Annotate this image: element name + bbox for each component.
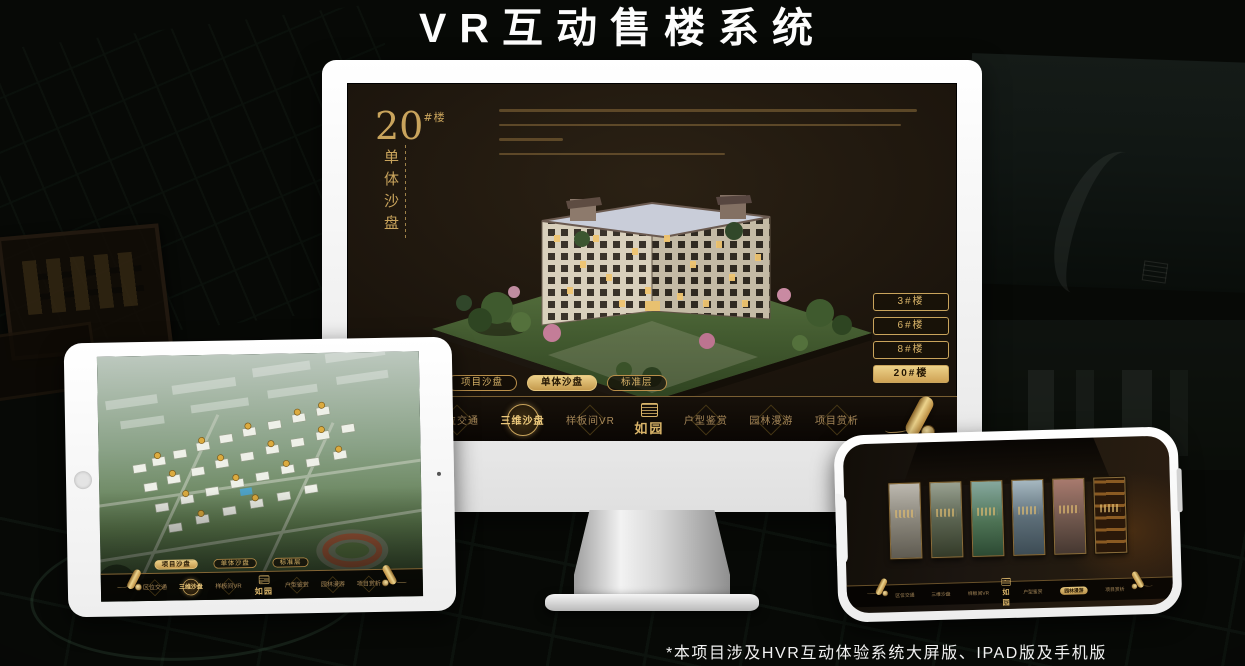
gallery-panel[interactable]	[929, 481, 963, 558]
block-subtitle: 单体沙盘	[381, 149, 402, 257]
brand-logo: 如园	[254, 575, 273, 596]
building-model-render[interactable]	[402, 143, 902, 403]
nav-item-garden-tour[interactable]: 园林漫游	[747, 408, 795, 431]
phone-device: 区位交通 三维沙盘 样板间VR 如园 户型鉴赏 园林漫游 项目赏析	[833, 426, 1182, 623]
gallery-panel[interactable]	[1052, 478, 1086, 555]
nav-item-unit-plans[interactable]: 户型鉴赏	[1022, 588, 1044, 596]
tablet-device: 项目沙盘 单体沙盘 标准层 区位交通 三维沙盘 样板间VR 如园 户型鉴赏 园林…	[64, 337, 457, 618]
footnote-text: *本项目涉及HVR互动体验系统大屏版、IPAD版及手机版	[666, 639, 1107, 663]
gallery-panel[interactable]	[888, 482, 922, 559]
seal-icon	[258, 575, 269, 584]
gallery-panel-row	[888, 476, 1127, 559]
block-number-suffix: #楼	[423, 111, 445, 124]
seal-icon	[641, 403, 658, 417]
nav-item-garden-tour[interactable]: 园林漫游	[319, 577, 346, 592]
notch	[835, 493, 848, 565]
floor-button-20-active[interactable]: 20#楼	[873, 365, 949, 383]
monitor-stand-base	[545, 594, 759, 611]
nav-item-showroom-vr[interactable]: 样板间VR	[214, 579, 244, 594]
brand-logo: 如园	[1001, 578, 1011, 607]
scroll-icon[interactable]	[1129, 570, 1153, 590]
scroll-icon[interactable]	[867, 578, 891, 598]
nav-item-location[interactable]: 区位交通	[894, 591, 916, 599]
tab-standard-floor[interactable]: 标准层	[272, 557, 308, 567]
side-button[interactable]	[1176, 468, 1182, 512]
tab-project-sandtable[interactable]: 项目沙盘	[154, 559, 197, 569]
block-number: 20#楼	[375, 99, 446, 145]
phone-screen: 区位交通 三维沙盘 样板间VR 如园 户型鉴赏 园林漫游 项目赏析	[843, 435, 1174, 613]
seal-icon	[1001, 578, 1011, 586]
nav-item-3d-sandtable[interactable]: 三维沙盘	[930, 590, 952, 598]
nav-item-unit-plans[interactable]: 户型鉴赏	[682, 408, 730, 431]
camera-icon	[437, 472, 441, 476]
scroll-icon[interactable]	[117, 569, 145, 592]
page-title: VR互动售楼系统	[0, 0, 1245, 56]
tablet-screen: 项目沙盘 单体沙盘 标准层 区位交通 三维沙盘 样板间VR 如园 户型鉴赏 园林…	[97, 351, 423, 602]
gallery-panel[interactable]	[1093, 476, 1127, 553]
nav-item-project-gallery[interactable]: 项目赏析	[813, 408, 861, 431]
nav-item-3d-sandtable[interactable]: 三维沙盘	[177, 579, 204, 594]
phone-navbar: 区位交通 三维沙盘 样板间VR 如园 户型鉴赏 园林漫游 项目赏析	[847, 576, 1173, 607]
poster-canvas: VR互动售楼系统 20#楼 单体沙盘	[0, 0, 1245, 666]
mode-tab-group: 项目沙盘 单体沙盘 标准层	[447, 375, 667, 391]
floor-button-group: 3#楼 6#楼 8#楼 20#楼	[873, 293, 949, 383]
tab-single-sandtable[interactable]: 单体沙盘	[527, 375, 597, 391]
gallery-panel[interactable]	[970, 480, 1004, 557]
tab-single-sandtable[interactable]: 单体沙盘	[213, 558, 256, 568]
tab-project-sandtable[interactable]: 项目沙盘	[447, 375, 517, 391]
gallery-panel[interactable]	[1011, 479, 1045, 556]
nav-item-3d-sandtable[interactable]: 三维沙盘	[499, 408, 547, 431]
floor-button-3[interactable]: 3#楼	[873, 293, 949, 311]
nav-item-unit-plans[interactable]: 户型鉴赏	[283, 578, 310, 593]
background-award-plaque	[0, 223, 173, 360]
tab-standard-floor[interactable]: 标准层	[607, 375, 667, 391]
nav-item-project-gallery[interactable]: 项目赏析	[1104, 585, 1126, 593]
floor-button-8[interactable]: 8#楼	[873, 341, 949, 359]
scroll-icon[interactable]	[379, 564, 407, 587]
nav-item-garden-tour[interactable]: 园林漫游	[1060, 586, 1088, 595]
nav-item-showroom-vr[interactable]: 样板间VR	[967, 589, 991, 597]
tablet-navbar: 区位交通 三维沙盘 样板间VR 如园 户型鉴赏 园林漫游 项目赏析	[101, 568, 423, 602]
brand-logo: 如园	[634, 403, 664, 437]
nav-item-location[interactable]: 区位交通	[141, 580, 168, 595]
nav-item-showroom-vr[interactable]: 样板间VR	[564, 408, 617, 431]
floor-button-6[interactable]: 6#楼	[873, 317, 949, 335]
background-aerial-photo	[964, 53, 1245, 293]
background-logo-glyph	[1142, 260, 1169, 283]
monitor-stand-neck	[574, 510, 730, 600]
